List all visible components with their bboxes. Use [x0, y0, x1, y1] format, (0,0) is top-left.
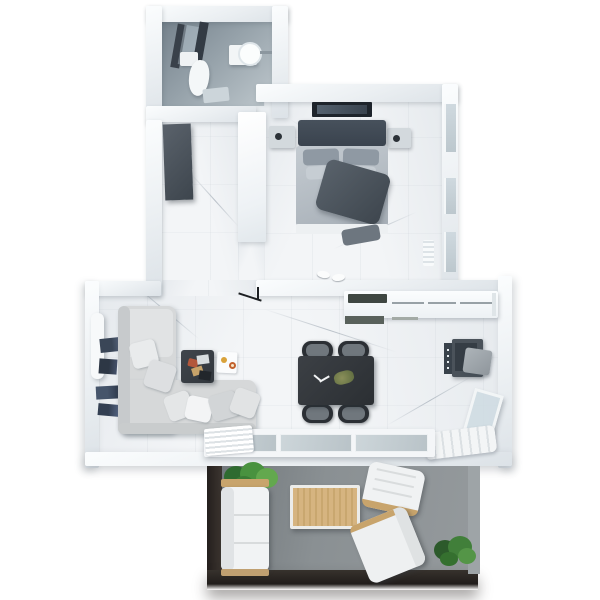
balcony	[0, 0, 600, 600]
outdoor-coffee-table	[290, 485, 360, 529]
outdoor-sofa-seam	[234, 514, 269, 516]
plant	[458, 548, 476, 564]
outdoor-sofa-frame	[221, 569, 269, 576]
outdoor-sofa-frame	[221, 479, 269, 487]
floor-plan-canvas	[0, 0, 600, 600]
balcony-railing-left	[207, 466, 222, 578]
outdoor-sofa-backrest	[221, 487, 234, 571]
outdoor-sofa-seam	[234, 542, 269, 544]
plant	[440, 552, 458, 566]
